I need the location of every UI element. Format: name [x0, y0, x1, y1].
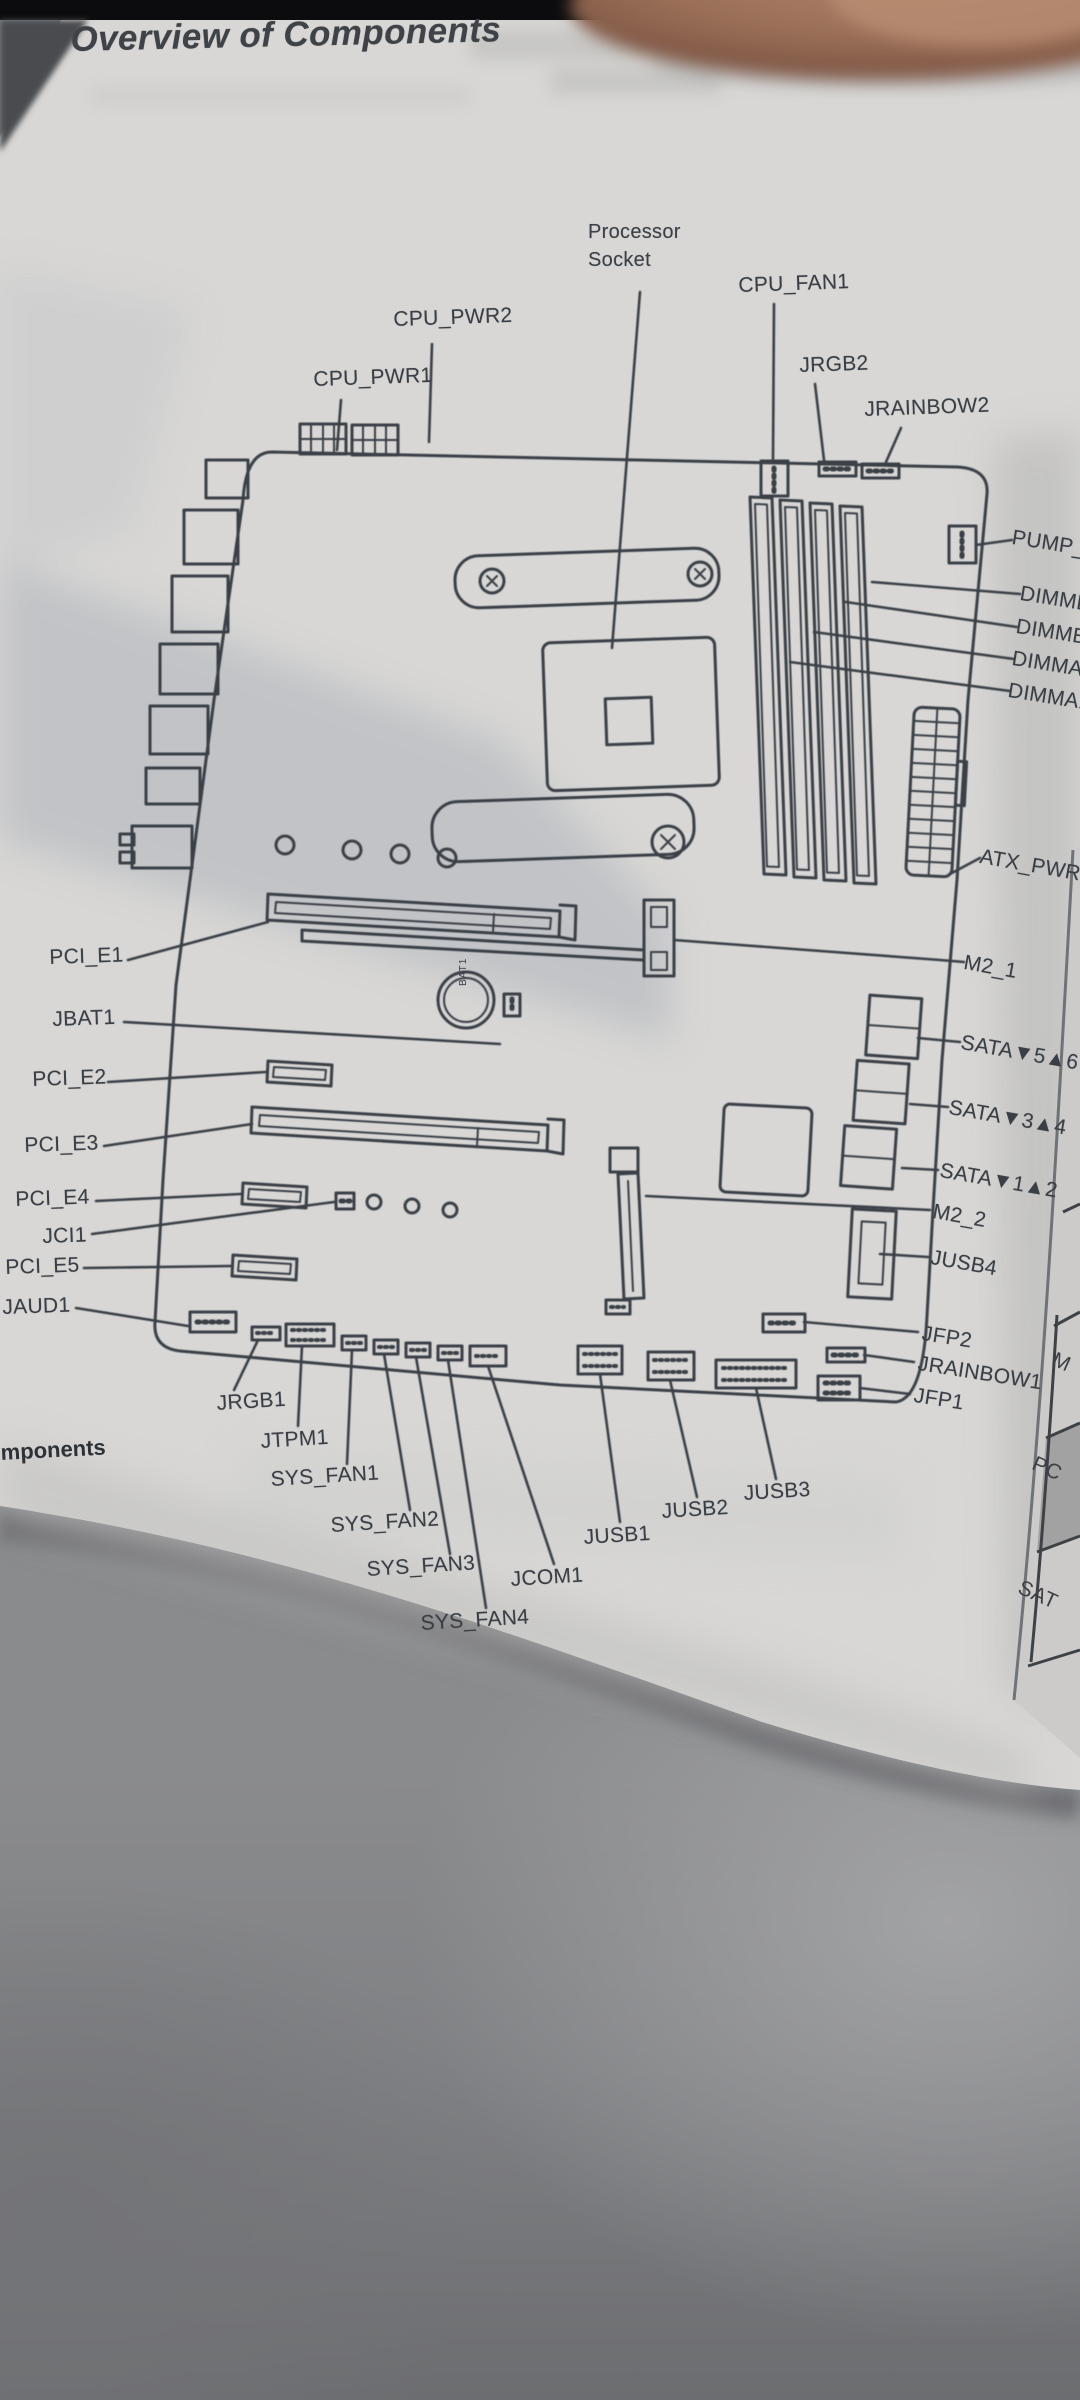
label-jusb1: JUSB1	[583, 1522, 651, 1550]
label-jci1: JCI1	[42, 1223, 87, 1249]
label-dimma1: DIMMA1	[1006, 679, 1080, 716]
label-sys-fan2: SYS_FAN2	[330, 1507, 440, 1538]
page-title: Overview of Components	[70, 10, 502, 60]
label-jrgb1: JRGB1	[216, 1388, 287, 1416]
label-jbat1: JBAT1	[52, 1006, 116, 1032]
label-jrgb2: JRGB2	[799, 352, 869, 378]
label-cpu-fan1: CPU_FAN1	[738, 270, 850, 298]
label-jrainbow2: JRAINBOW2	[864, 394, 990, 422]
label-dimma2: DIMMA2	[1010, 647, 1080, 684]
footer-partial-text: mponents	[0, 1434, 106, 1465]
label-sata56: SATA▼5▲6	[959, 1031, 1080, 1075]
label-jusb2: JUSB2	[661, 1496, 729, 1524]
label-jusb4: JUSB4	[929, 1246, 999, 1281]
label-sys-fan4: SYS_FAN4	[420, 1605, 530, 1636]
label-cpu-pwr2: CPU_PWR2	[393, 304, 513, 332]
facing-table-row1: M	[1048, 1348, 1074, 1377]
label-sys-fan1: SYS_FAN1	[270, 1461, 380, 1492]
label-sata12: SATA▼1▲2	[938, 1159, 1059, 1203]
label-dimmb1: DIMMB1	[1014, 615, 1080, 652]
facing-table-row3: SAT	[1014, 1576, 1061, 1615]
manual-photo: Overview of Components Processor Socket …	[0, 0, 1080, 2400]
label-pci-e2: PCI_E2	[32, 1065, 107, 1092]
label-cpu-pwr1: CPU_PWR1	[313, 364, 433, 392]
label-sata34: SATA▼3▲4	[947, 1096, 1068, 1140]
label-pci-e4: PCI_E4	[15, 1185, 90, 1212]
label-pci-e1: PCI_E1	[49, 943, 124, 970]
label-atx-pwr1: ATX_PWR1	[978, 845, 1080, 888]
label-m2-2: M2_2	[931, 1200, 988, 1233]
label-pump-fan1: PUMP_FAN1	[1010, 526, 1080, 570]
text-layer: Overview of Components Processor Socket …	[0, 0, 1080, 2400]
label-jfp1: JFP1	[912, 1384, 965, 1416]
label-jusb3: JUSB3	[743, 1478, 811, 1506]
label-pci-e5: PCI_E5	[5, 1253, 80, 1280]
facing-table-row2: PC	[1028, 1452, 1065, 1486]
label-processor-socket: Processor Socket	[588, 218, 681, 274]
label-jcom1: JCOM1	[510, 1564, 584, 1592]
battery-text: BAT1	[458, 958, 469, 986]
label-m2-1: M2_1	[962, 951, 1019, 984]
label-pci-e3: PCI_E3	[24, 1131, 99, 1158]
label-jtpm1: JTPM1	[260, 1426, 329, 1454]
label-sys-fan3: SYS_FAN3	[366, 1551, 476, 1582]
label-jfp2: JFP2	[920, 1322, 973, 1354]
label-jaud1: JAUD1	[2, 1294, 71, 1320]
label-dimmb2: DIMMB2	[1018, 582, 1080, 619]
